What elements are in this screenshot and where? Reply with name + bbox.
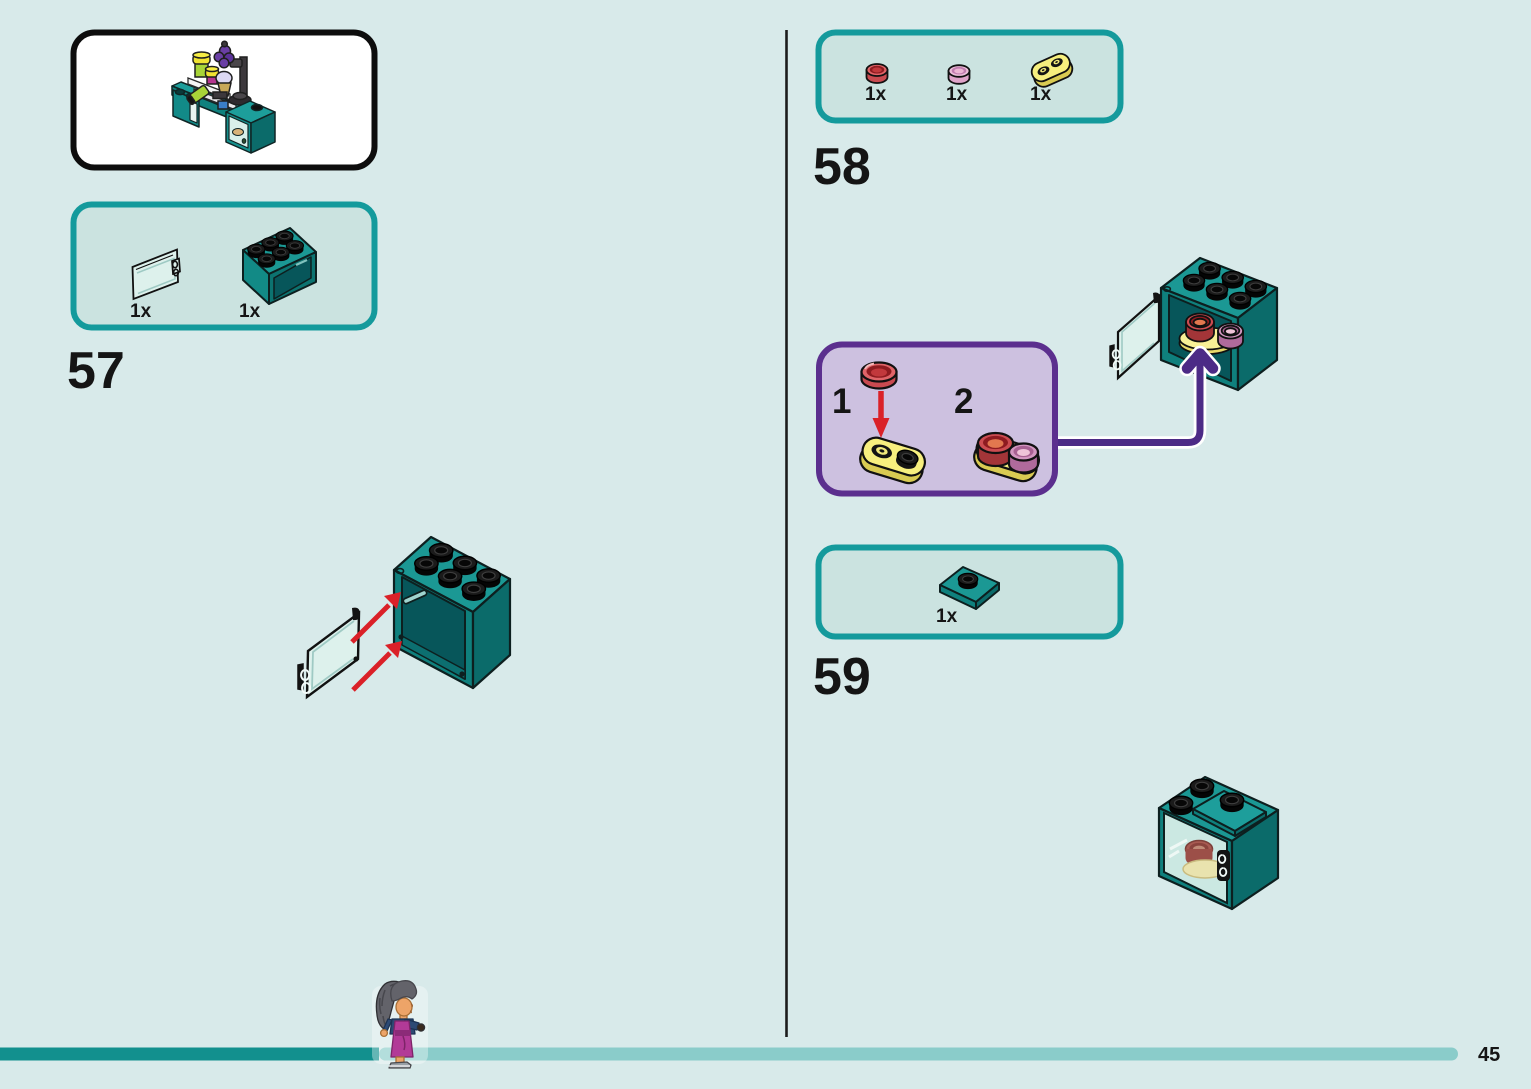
svg-text:1x: 1x xyxy=(865,84,887,105)
svg-text:1x: 1x xyxy=(946,84,968,105)
svg-text:59: 59 xyxy=(813,648,871,706)
svg-text:1x: 1x xyxy=(936,606,958,627)
svg-text:57: 57 xyxy=(67,342,125,400)
svg-text:1x: 1x xyxy=(130,301,152,322)
svg-text:1x: 1x xyxy=(1030,84,1052,105)
svg-text:2: 2 xyxy=(954,382,973,421)
svg-text:1x: 1x xyxy=(239,301,261,322)
svg-text:58: 58 xyxy=(813,138,871,196)
svg-text:45: 45 xyxy=(1478,1044,1500,1066)
svg-text:1: 1 xyxy=(832,382,851,421)
